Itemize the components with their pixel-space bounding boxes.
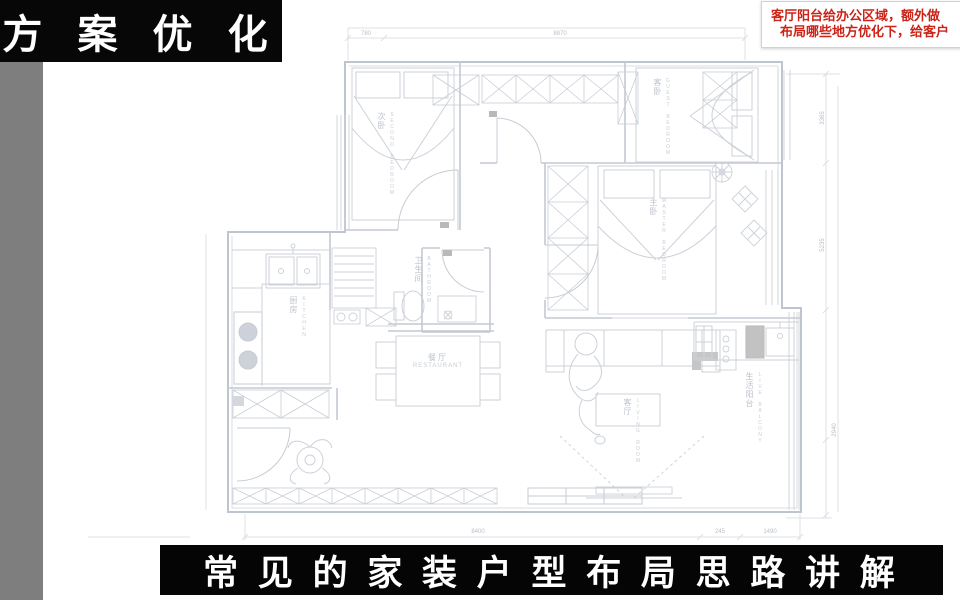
pillow-icons [732,186,767,246]
doors [237,118,598,481]
annotation-note-line2: 布局哪些地方优化下，给客户 [780,24,960,40]
fridge-icon [332,248,396,326]
sliding-door [528,488,642,504]
coffee-table [596,394,660,426]
title-banner-text: 方 案 优 化 [2,2,279,60]
dim-right-middle: 5235 [820,238,826,252]
person-figure [569,333,605,444]
dim-top-main: 8870 [553,31,567,37]
bed-second-bedroom [352,68,454,220]
dim-top-left: 780 [361,31,372,37]
tv-projection [560,436,704,498]
plant-icon [288,440,332,484]
door-hardware [232,111,497,406]
outer-walls [228,62,801,512]
dining-table [376,336,500,406]
windows [337,70,799,510]
title-banner: 方 案 优 化 [0,0,282,62]
bed-master-bedroom [598,166,716,314]
ceiling-symbol [712,162,732,182]
side-unit [692,330,736,370]
outer-wall-inner-lines [232,66,797,508]
caption-banner-text: 常 见 的 家 装 户 型 布 局 思 路 讲 解 [203,545,900,595]
annotation-note: 客厅阳台给办公区域，额外做 布局哪些地方优化下，给客户 [761,1,960,48]
dim-right-lower: 2940 [832,423,838,437]
bed-guest-bedroom [636,68,758,162]
caption-banner: 常 见 的 家 装 户 型 布 局 思 路 讲 解 [160,545,943,595]
left-gray-bar [0,62,43,600]
dim-bottom-b: 1490 [763,529,777,535]
dim-right-upper: 3365 [820,111,826,125]
floor-plan-drawing: 780 8870 3365 5235 2940 8400 245 1490 [0,0,960,600]
shower-icon [438,296,476,322]
dim-bottom-a: 245 [715,529,726,535]
kitchen-stove [234,312,262,384]
dim-bottom-main: 8400 [471,529,485,535]
annotation-note-line1: 客厅阳台给办公区域，额外做 [771,8,960,24]
toilet-icon [394,291,424,321]
kitchen-sink [266,244,320,288]
